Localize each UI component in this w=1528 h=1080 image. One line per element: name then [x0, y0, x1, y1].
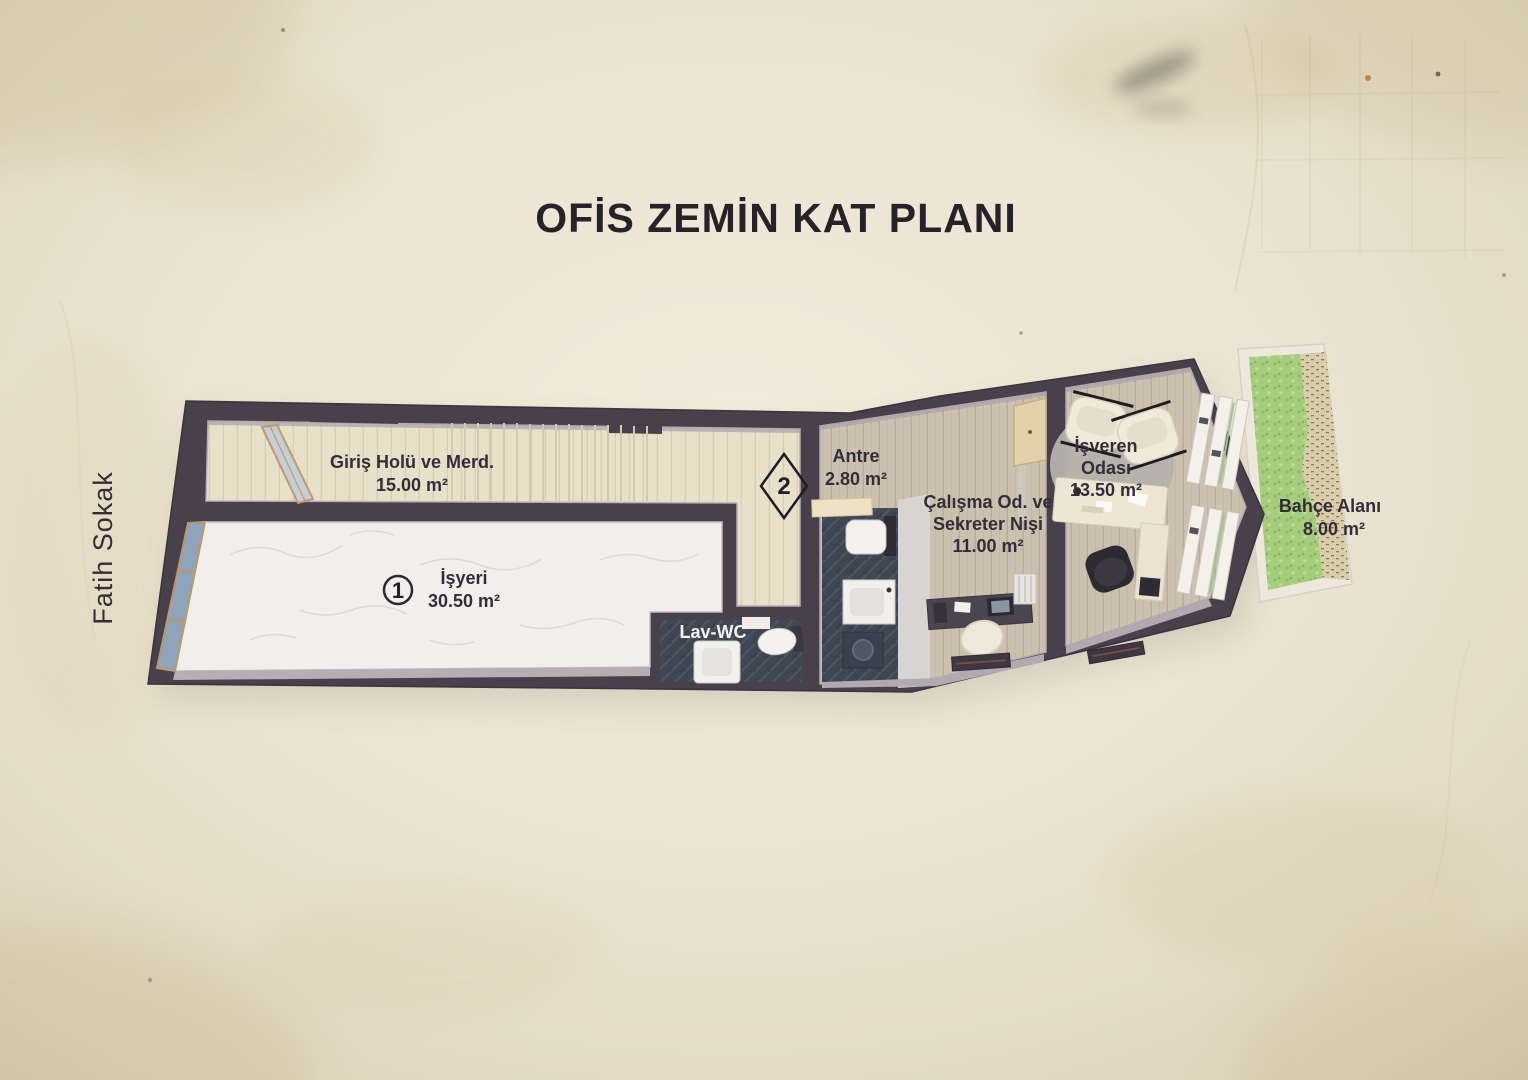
- paper-stain: [260, 885, 600, 1015]
- bathroom-side-wall-face: [898, 494, 930, 688]
- isveren-label-line2: Odası: [1081, 458, 1131, 478]
- side-cabinet: [1135, 523, 1170, 601]
- isyeri-area: 30.50 m²: [428, 591, 500, 611]
- isveren-label-line1: İşveren: [1074, 436, 1137, 456]
- lav-wc-label: Lav-WC: [680, 622, 747, 642]
- wardrobe-handle: [1028, 430, 1032, 434]
- isyeri-label: İşyeri: [440, 568, 487, 588]
- sink-bowl: [850, 588, 884, 616]
- calisma-label-line1: Çalışma Od. ve: [923, 492, 1052, 512]
- floor-plan-canvas: 1 2 Giriş Holü ve Merd. 15.00 m² İşyeri …: [0, 0, 1528, 1080]
- stair-marker-number: 2: [777, 473, 790, 500]
- antre-area: 2.80 m²: [825, 469, 887, 489]
- page-title: OFİS ZEMİN KAT PLANI: [535, 195, 1017, 241]
- papers: [954, 602, 971, 613]
- paper-stain: [1040, 20, 1340, 130]
- isveren-area: 13.50 m²: [1070, 480, 1142, 500]
- calisma-label-line2: Sekreter Nişi: [933, 514, 1043, 534]
- paper-stain: [1110, 795, 1490, 965]
- unit-1-number: 1: [392, 578, 404, 603]
- printer: [1139, 577, 1160, 597]
- hall-cabinet: [812, 498, 873, 517]
- giris-holu-area: 15.00 m²: [376, 475, 448, 495]
- bahce-label: Bahçe Alanı: [1279, 496, 1381, 516]
- floor-plan-page: 1 2 Giriş Holü ve Merd. 15.00 m² İşyeri …: [0, 0, 1528, 1080]
- wc-sink-bowl: [702, 648, 732, 676]
- laptop-screen: [991, 600, 1010, 613]
- bahce-area: 8.00 m²: [1303, 519, 1365, 539]
- desk-tray: [933, 602, 947, 623]
- calisma-area: 11.00 m²: [952, 536, 1023, 556]
- charcoal-smudge: [1133, 100, 1193, 116]
- street-label: Fatih Sokak: [88, 471, 118, 625]
- washer-door: [853, 640, 873, 660]
- toilet: [846, 520, 886, 554]
- paper-stain: [110, 70, 370, 210]
- wall-notch: [310, 406, 398, 424]
- antre-label: Antre: [832, 446, 879, 466]
- faucet: [887, 588, 892, 593]
- giris-holu-label: Giriş Holü ve Merd.: [330, 452, 494, 472]
